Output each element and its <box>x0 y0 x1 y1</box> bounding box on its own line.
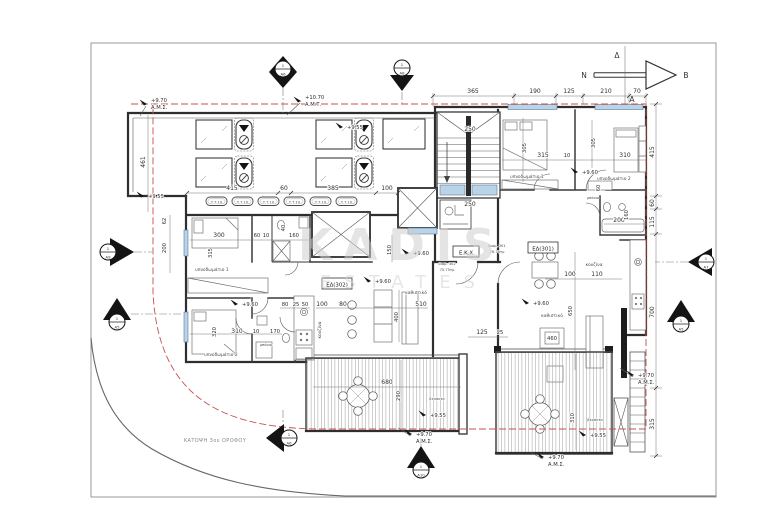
solar-heater-icon <box>196 118 254 151</box>
roof-unit-label: Τ.Τ.10 <box>236 201 249 205</box>
kitchen-island <box>374 290 392 342</box>
dim-text: 60 <box>596 185 602 192</box>
compass-east-label: Α <box>629 95 635 104</box>
dim-text: 60 <box>254 233 261 239</box>
dim-text: 125 <box>563 88 575 95</box>
dim-text: 10 <box>253 329 260 335</box>
dim-text: 190 <box>529 88 541 95</box>
dim-text: 250 <box>464 201 476 208</box>
dim-text: 310 <box>231 328 243 335</box>
compass-south-label: Ν <box>581 71 587 80</box>
level-value: +9.70 <box>151 98 167 104</box>
room-label-bedroom2-right: υπνοδωμάτιο 2 <box>597 175 631 182</box>
level-value: +9.70 <box>416 432 432 438</box>
watermark: KADIS ESTATES <box>298 220 506 293</box>
roof-unit-label: Τ.Τ.10 <box>314 201 327 205</box>
marker-id: Α7 <box>703 264 709 269</box>
marker-id: Α8 <box>399 70 405 75</box>
wardrobe <box>639 126 646 172</box>
dim-text: 80 <box>282 302 289 308</box>
marker-id: Α9 <box>105 254 111 259</box>
window <box>508 105 557 110</box>
dim-text: 50 <box>302 302 309 308</box>
dim-text: 650 <box>568 306 574 316</box>
dim-text: 461 <box>140 156 147 168</box>
room-label-bedroom1-right: υπνοδωμάτιο 1 <box>510 173 544 180</box>
wall-pier <box>621 308 627 378</box>
room-label-kitchen-left: κουζίνα <box>316 321 323 338</box>
dim-text: 415 <box>649 146 656 158</box>
dim-text: 110 <box>591 271 603 278</box>
roof-unit-label: Τ.Τ.10 <box>340 201 353 205</box>
dim-text: 25 <box>293 302 300 308</box>
window <box>184 312 188 342</box>
dim-text: 305 <box>591 138 597 148</box>
floor-plan-drawing: Τ.Τ.10 Τ.Τ.10 Τ.Τ.10 Τ.Τ.10 Τ.Τ.10 Τ.Τ.1… <box>0 0 768 518</box>
level-value: +9.60 <box>582 170 598 176</box>
room-label-bedroom2-left: υπνοδωμάτιο 2 <box>204 351 238 358</box>
level-datum: Α.Μ.Σ. <box>548 462 565 468</box>
level-datum: Α.Μ.Τ. <box>305 102 321 108</box>
dim-text: 10 <box>564 153 571 159</box>
room-label-bath-right: μπάνιο <box>587 196 599 200</box>
dim-text: 200 <box>162 243 168 253</box>
dim-text: 460 <box>547 336 557 342</box>
dim-text: 60 <box>649 199 656 207</box>
window <box>184 230 188 256</box>
level-value: +10.70 <box>305 95 324 101</box>
level-value: +9.55 <box>347 125 363 131</box>
room-label-bath-left: μπάνιο <box>260 343 272 347</box>
solar-heater-icon <box>196 156 254 189</box>
roof-unit-label: Τ.Τ.10 <box>288 201 301 205</box>
level-value: +9.55 <box>590 433 606 439</box>
kitchen-counter <box>630 240 646 330</box>
dim-text: 315 <box>537 152 549 159</box>
dim-text: 400 <box>394 312 400 322</box>
level-datum: Α.Μ.Σ. <box>416 439 433 445</box>
dim-text: 62 <box>162 218 168 225</box>
compass-north-label: Β <box>683 71 688 80</box>
solar-panel-icon <box>383 119 425 149</box>
level-value: +9.60 <box>533 301 549 307</box>
dim-text: 300 <box>213 232 225 239</box>
level-datum: Α.Μ.Σ. <box>151 105 168 111</box>
room-label-veranda-right: βεράντα <box>587 418 603 422</box>
floor-plan-sheet: Τ.Τ.10 Τ.Τ.10 Τ.Τ.10 Τ.Τ.10 Τ.Τ.10 Τ.Τ.1… <box>0 0 768 518</box>
sofa <box>402 292 418 344</box>
level-value: +9.55 <box>430 413 446 419</box>
room-label-kitchen-right: κουζίνα <box>585 261 602 268</box>
dim-text: 320 <box>212 327 218 337</box>
marker-id: Α6 <box>286 440 292 445</box>
room-label-living-right: καθιστικό <box>541 312 563 319</box>
dim-text: 310 <box>619 152 631 159</box>
bed <box>614 128 638 172</box>
apartment-301-code: ΕΔ(301) <box>532 247 554 253</box>
dining-table <box>532 262 558 278</box>
dim-text: 170 <box>270 329 280 335</box>
dim-text: 125 <box>476 329 488 336</box>
dim-text: 100 <box>381 185 393 192</box>
dim-text: 100 <box>316 301 328 308</box>
dim-text: 25 <box>497 330 504 336</box>
dim-text: 10 <box>263 233 270 239</box>
dim-text: 305 <box>522 143 528 153</box>
window <box>595 105 643 110</box>
dim-text: 315 <box>649 418 656 430</box>
dim-text: 290 <box>396 391 402 401</box>
level-datum: Α.Μ.Σ. <box>638 380 655 386</box>
dim-text: 315 <box>208 248 214 258</box>
dim-text: 510 <box>415 301 427 308</box>
dim-text: 310 <box>570 413 576 423</box>
dim-text: 60 <box>280 185 288 192</box>
drawing-caption: ΚΑΤΟΨΗ 3ου ΟΡΟΦΟΥ <box>184 438 247 444</box>
roof-unit-label: Τ.Τ.10 <box>210 201 223 205</box>
marker-id: Α5 <box>114 324 120 329</box>
marker-id: Α5 <box>678 326 684 331</box>
dim-text: 160 <box>624 210 630 220</box>
solar-heater-icon <box>316 156 374 189</box>
room-label-bedroom1-left: υπνοδωμάτιο 1 <box>195 266 229 273</box>
marker-id: Α6 <box>280 71 286 76</box>
dim-text: 210 <box>600 88 612 95</box>
dim-text: 80 <box>339 301 347 308</box>
dim-text: 415 <box>226 185 238 192</box>
compass-west-label: Δ <box>614 51 620 60</box>
dim-text: 40 <box>281 225 287 232</box>
marker-id: Α10 <box>417 472 425 477</box>
dim-text: 115 <box>649 216 656 228</box>
level-value: +9.70 <box>638 373 654 379</box>
watermark-brand: KADIS <box>298 220 506 271</box>
dim-text: 700 <box>649 306 656 318</box>
room-label-veranda-left: βεράντα <box>429 397 445 401</box>
level-value: +9.70 <box>548 455 564 461</box>
dim-text: 680 <box>381 379 393 386</box>
dim-text: 385 <box>327 185 339 192</box>
level-value: +9.55 <box>148 194 164 200</box>
dim-text: 100 <box>564 271 576 278</box>
veranda-left <box>306 354 467 434</box>
roof-unit-label: Τ.Τ.10 <box>262 201 275 205</box>
watermark-sub: ESTATES <box>320 272 488 293</box>
dim-text: 365 <box>467 88 479 95</box>
solar-heater-icon <box>316 118 374 151</box>
level-value: +9.60 <box>242 302 258 308</box>
dim-text: 70 <box>633 88 641 95</box>
dim-text: 250 <box>464 126 476 133</box>
